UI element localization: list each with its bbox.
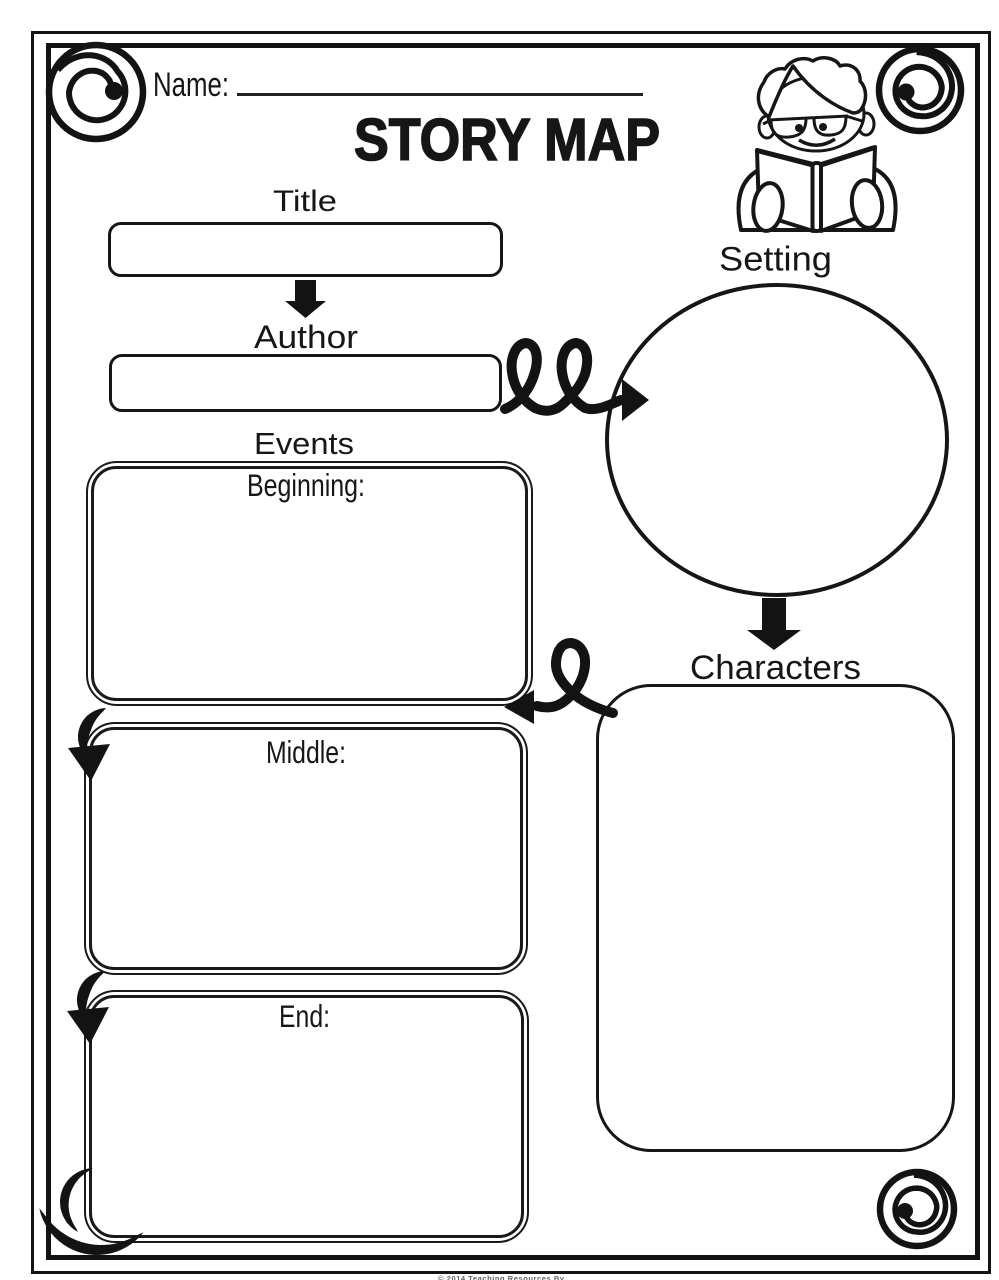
svg-text:Middle:: Middle: (266, 734, 346, 770)
svg-text:STORY MAP: STORY MAP (354, 107, 660, 173)
svg-text:Beginning:: Beginning: (247, 467, 365, 503)
svg-text:Characters: Characters (690, 649, 861, 687)
svg-text:Author: Author (254, 319, 358, 355)
svg-text:End:: End: (279, 998, 330, 1034)
svg-text:Events: Events (254, 427, 354, 461)
svg-text:Setting: Setting (719, 241, 832, 279)
svg-text:Name:: Name: (153, 66, 229, 104)
svg-text:© 2014 Teaching Resources By: © 2014 Teaching Resources By (438, 1274, 565, 1280)
svg-text:Title: Title (273, 185, 337, 218)
